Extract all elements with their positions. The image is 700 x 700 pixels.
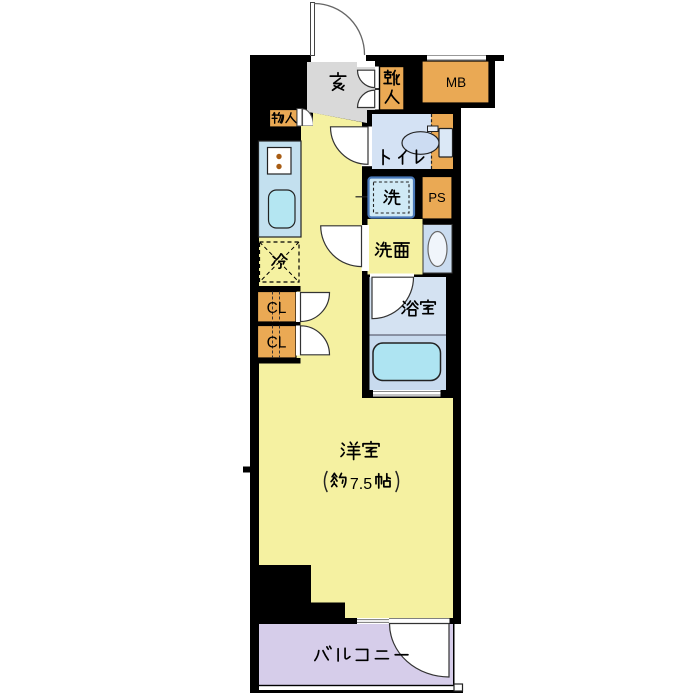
svg-text:MB: MB (446, 75, 466, 90)
svg-text:CL: CL (267, 300, 287, 317)
svg-text:PS: PS (428, 190, 446, 205)
svg-text:7.5: 7.5 (350, 476, 372, 493)
svg-text:CL: CL (267, 335, 287, 352)
